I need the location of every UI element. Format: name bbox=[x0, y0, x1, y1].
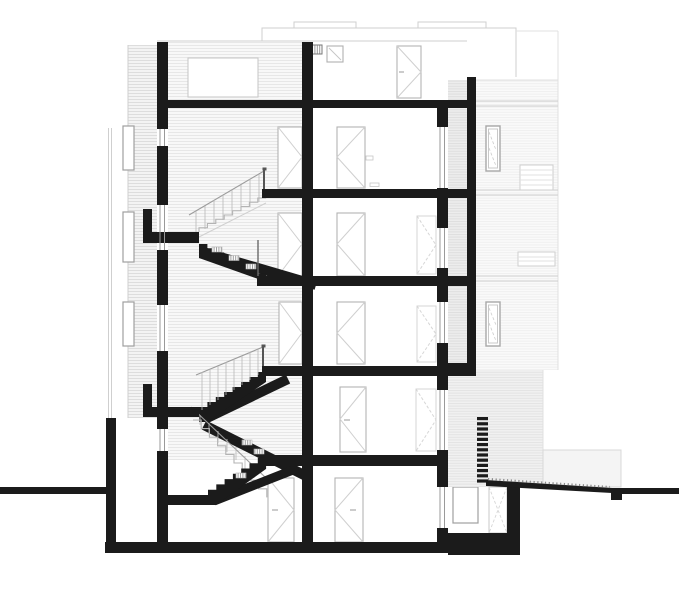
door bbox=[340, 387, 366, 452]
door bbox=[337, 302, 365, 364]
rooflight-curb bbox=[294, 22, 356, 28]
left-areaway-wall bbox=[106, 418, 116, 553]
left-exterior-wall bbox=[157, 42, 168, 545]
neighbor-louver-box bbox=[520, 165, 553, 190]
background-step-outline bbox=[543, 370, 621, 450]
street-ground-line bbox=[0, 487, 116, 494]
ground-floor-slab bbox=[265, 455, 448, 466]
threshold-mark bbox=[370, 183, 379, 187]
window bbox=[160, 305, 165, 351]
floor-slab-3 bbox=[262, 189, 476, 198]
entry-hall-floor bbox=[157, 495, 210, 505]
neighbor-window bbox=[486, 126, 500, 171]
door bbox=[337, 213, 365, 276]
door bbox=[337, 127, 379, 188]
window bbox=[440, 228, 445, 268]
right-shaft-hatch bbox=[448, 80, 467, 370]
background-low-mass bbox=[543, 450, 621, 487]
rooflight-opening bbox=[188, 58, 258, 97]
tread-hatch-mark bbox=[254, 449, 264, 454]
window bbox=[440, 487, 445, 528]
window bbox=[160, 205, 165, 250]
tread-hatch-mark bbox=[229, 256, 239, 261]
rooflight-curb bbox=[418, 22, 486, 28]
floor-slab-4 bbox=[157, 100, 476, 108]
facade-window-box bbox=[123, 302, 134, 346]
attic-hatch-box bbox=[327, 46, 343, 62]
section-drawing bbox=[0, 0, 680, 600]
annex-fixture bbox=[453, 487, 478, 523]
neighbor-window bbox=[486, 302, 500, 346]
right-foundation-wall bbox=[507, 487, 520, 543]
downpipe bbox=[109, 128, 112, 418]
neighbor-ledge-box bbox=[518, 252, 555, 266]
door bbox=[279, 302, 302, 364]
window bbox=[440, 390, 445, 450]
tread-hatch-mark bbox=[242, 440, 252, 445]
door bbox=[335, 478, 363, 542]
window bbox=[440, 302, 445, 343]
door-handle-mark bbox=[366, 156, 373, 160]
right-outer-wall bbox=[467, 77, 476, 374]
floor-slab-1 bbox=[262, 366, 476, 376]
door-faint bbox=[416, 389, 436, 451]
door-faint bbox=[417, 306, 436, 362]
attic-grille bbox=[312, 45, 322, 54]
door-faint bbox=[417, 216, 436, 274]
floor-slab-2 bbox=[257, 276, 476, 286]
tread-hatch-mark bbox=[212, 247, 222, 252]
window bbox=[440, 127, 445, 188]
door bbox=[278, 213, 302, 276]
section-drawing-canvas: Building cross-section drawing bbox=[0, 0, 680, 600]
central-wall bbox=[302, 42, 313, 545]
door bbox=[397, 46, 421, 98]
window bbox=[160, 429, 165, 451]
door bbox=[268, 478, 294, 542]
window bbox=[160, 129, 165, 146]
annex-door bbox=[489, 487, 507, 533]
facade-window-box bbox=[123, 126, 134, 170]
tread-hatch-mark bbox=[246, 264, 256, 269]
door bbox=[278, 127, 302, 188]
facade-window-box bbox=[123, 212, 134, 262]
right-inner-wall bbox=[437, 100, 448, 545]
tread-hatch-mark bbox=[236, 473, 246, 478]
